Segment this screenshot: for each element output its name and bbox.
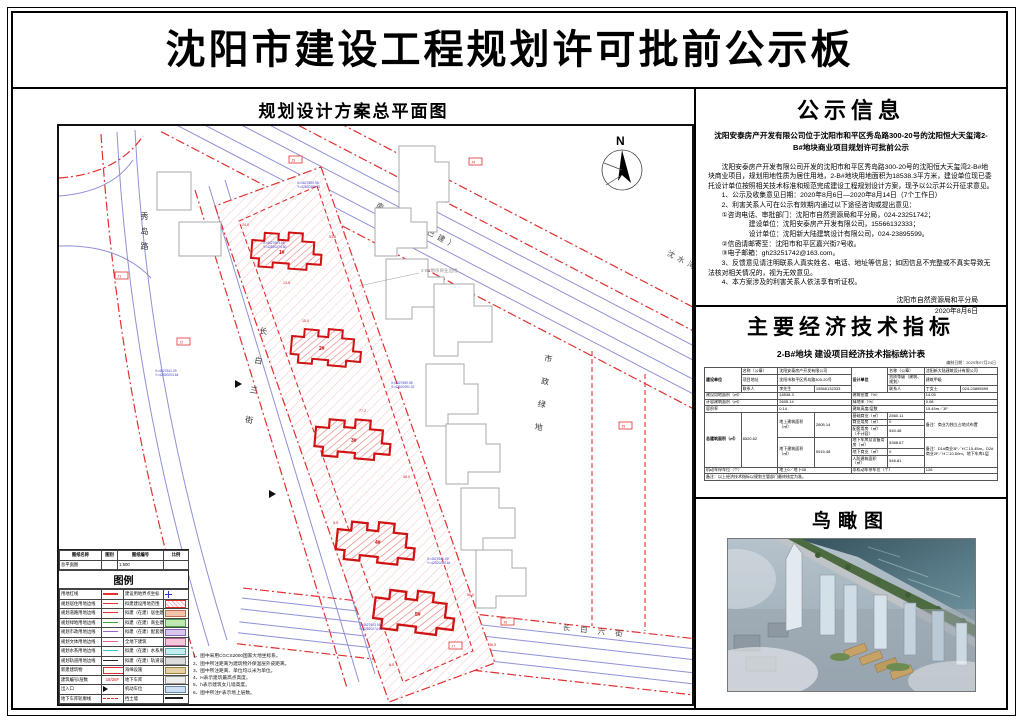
site-plan-title: 规划设计方案总平面图: [13, 97, 694, 122]
svg-text:53.6: 53.6: [329, 235, 336, 239]
legend-title: 图例: [59, 570, 188, 589]
svg-text:J2: J2: [180, 341, 184, 345]
svg-text:4#: 4#: [375, 540, 381, 546]
svg-text:24.0: 24.0: [242, 223, 249, 227]
svg-text:Y=42520274.80: Y=42520274.80: [263, 245, 287, 249]
birds-eye-rendering: [727, 538, 976, 692]
svg-text:Y=42520274.80: Y=42520274.80: [359, 627, 383, 631]
svg-text:9.9: 9.9: [333, 521, 338, 525]
svg-text:1#: 1#: [279, 250, 285, 256]
notice-body: 沈阳安泰房产开发有限公司开发的沈阳市和平区秀岛路300-20号的沈阳恒大天玺湾2…: [708, 163, 994, 288]
svg-text:36.5: 36.5: [489, 643, 496, 647]
road-label-shenshuiwan: 沈水湾路: [665, 248, 692, 278]
road-label-changbai6: 长 白 六 街: [562, 622, 627, 639]
svg-text:2#: 2#: [319, 346, 325, 352]
svg-text:N: N: [616, 134, 625, 148]
page-title: 沈阳市建设工程规划许可批前公示板: [13, 13, 1006, 89]
svg-text:6.0: 6.0: [389, 663, 394, 667]
svg-text:Y=42520203.64: Y=42520203.64: [427, 561, 451, 565]
road-label-xiudao: 秀岛路: [139, 212, 150, 257]
svg-text:J7: J7: [452, 645, 456, 649]
site-plan-panel: 规划设计方案总平面图: [13, 89, 694, 708]
aerial-title: 鸟瞰图: [696, 506, 1006, 533]
svg-text:15.0: 15.0: [302, 319, 309, 323]
svg-text:J5: J5: [622, 425, 626, 429]
indicators-table: 建设单位名称（公章）沈阳安泰房产开发有限公司设计单位名称（公章）沈阳新大陆建筑设…: [704, 367, 998, 481]
info-column: 公示信息 沈阳安泰房产开发有限公司位于沈阳市和平区秀岛路300-20号的沈阳恒大…: [694, 89, 1006, 708]
notice-board-page: 沈阳市建设工程规划许可批前公示板 规划设计方案总平面图: [0, 0, 1023, 723]
indicators-table-title: 2-B#地块 建设项目经济技术指标统计表: [704, 348, 998, 360]
board-frame: 沈阳市建设工程规划许可批前公示板 规划设计方案总平面图: [11, 11, 1008, 710]
svg-text:J3: J3: [292, 159, 296, 163]
svg-text:77.2: 77.2: [359, 409, 366, 413]
svg-text:3#: 3#: [351, 438, 357, 444]
svg-text:56.0: 56.0: [467, 593, 474, 597]
svg-text:Y=42520391.02: Y=42520391.02: [297, 185, 321, 189]
north-compass: N: [602, 134, 642, 190]
site-plan-map: 南堤西路（已建） 沈水湾路 长 白 六 街: [57, 124, 694, 706]
notice-sign-org: 沈阳市自然资源局和平分局: [708, 295, 978, 307]
indicators-panel: 主要经济技术指标 2-B#地块 建设项目经济技术指标统计表 编制日期：2020年…: [696, 307, 1006, 499]
notice-signature: 沈阳市自然资源局和平分局 2020年8月6日: [708, 295, 994, 318]
svg-text:48.0: 48.0: [403, 475, 410, 479]
svg-text:J6: J6: [504, 621, 508, 625]
legend-table: 用地红线建设用地界点坐标规划居住用地边线拟建建设用地范围规划道路用地边线拟建（在…: [59, 589, 189, 704]
svg-text:13.5: 13.5: [283, 281, 290, 285]
svg-text:Y=42520203.64: Y=42520203.64: [155, 373, 179, 377]
notice-sign-date: 2020年8月6日: [708, 306, 978, 318]
aerial-panel: 鸟瞰图: [696, 499, 1006, 708]
svg-text:5#: 5#: [415, 612, 421, 618]
svg-text:Y=42520391.02: Y=42520391.02: [391, 385, 415, 389]
notice-subtitle: 沈阳安泰房产开发有限公司位于沈阳市和平区秀岛路300-20号的沈阳恒大天玺湾2-…: [712, 130, 990, 154]
svg-text:2-B#地块商业边线: 2-B#地块商业边线: [421, 267, 458, 274]
plan-notes: 1、图中采用CGCS2000国家大地坐标系。2、图中所注距离为建筑物外保温层外皮…: [193, 652, 319, 696]
indicators-table-date: 编制日期：2020年07月24日: [706, 360, 996, 366]
svg-text:J1: J1: [118, 275, 122, 279]
legend: 图纸名称图别图纸编号比例总平面图1:500 图例 用地红线建设用地界点坐标规划居…: [58, 549, 189, 705]
notice-title: 公示信息: [708, 93, 994, 125]
notice-panel: 公示信息 沈阳安泰房产开发有限公司位于沈阳市和平区秀岛路300-20号的沈阳恒大…: [696, 89, 1006, 307]
main-area: 规划设计方案总平面图: [13, 89, 1006, 708]
svg-text:J4: J4: [472, 161, 476, 165]
legend-head-table: 图纸名称图别图纸编号比例总平面图1:500: [59, 550, 189, 570]
